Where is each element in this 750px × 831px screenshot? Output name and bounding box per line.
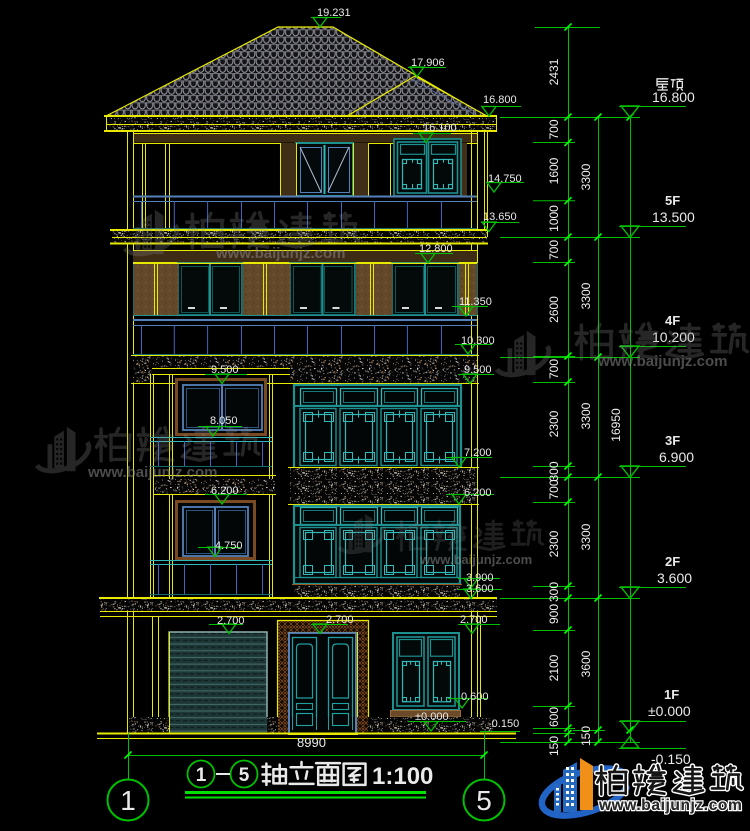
svg-text:600: 600 xyxy=(547,707,561,727)
svg-text:700: 700 xyxy=(547,359,561,379)
svg-text:2300: 2300 xyxy=(547,530,561,557)
svg-text:10.300: 10.300 xyxy=(461,335,495,347)
svg-text:2600: 2600 xyxy=(547,296,561,323)
svg-text:2F: 2F xyxy=(665,554,680,569)
svg-text:3.600: 3.600 xyxy=(657,570,692,586)
svg-text:5: 5 xyxy=(239,765,250,786)
svg-text:2.700: 2.700 xyxy=(460,614,488,626)
svg-text:3600: 3600 xyxy=(579,650,593,677)
svg-text:19.231: 19.231 xyxy=(317,7,351,19)
svg-text:3.600: 3.600 xyxy=(466,583,494,595)
svg-text:16.100: 16.100 xyxy=(423,122,457,134)
svg-text:300: 300 xyxy=(547,582,561,602)
svg-text:3300: 3300 xyxy=(579,523,593,550)
svg-text:1600: 1600 xyxy=(547,157,561,184)
svg-text:6.200: 6.200 xyxy=(464,487,492,499)
svg-text:2431: 2431 xyxy=(547,58,561,85)
svg-text:2100: 2100 xyxy=(547,654,561,681)
svg-text:300: 300 xyxy=(547,461,561,481)
svg-text:900: 900 xyxy=(547,604,561,624)
svg-text:1: 1 xyxy=(196,765,207,786)
svg-text:5F: 5F xyxy=(665,193,680,208)
svg-text:1: 1 xyxy=(120,785,136,816)
svg-text:9.500: 9.500 xyxy=(211,364,239,376)
svg-text:1000: 1000 xyxy=(547,205,561,232)
svg-text:3300: 3300 xyxy=(579,163,593,190)
svg-text:4.750: 4.750 xyxy=(215,540,243,552)
svg-text:-0.150: -0.150 xyxy=(488,718,519,730)
svg-text:14.750: 14.750 xyxy=(488,173,522,185)
svg-text:www.baijunjz.com: www.baijunjz.com xyxy=(419,552,532,567)
svg-text:13.500: 13.500 xyxy=(652,209,695,225)
svg-text:8990: 8990 xyxy=(297,735,326,750)
svg-text:6.900: 6.900 xyxy=(659,449,694,465)
svg-text:150: 150 xyxy=(579,726,593,746)
svg-text:0.600: 0.600 xyxy=(461,691,489,703)
svg-text:2.700: 2.700 xyxy=(326,614,354,626)
svg-text:700: 700 xyxy=(547,119,561,139)
svg-text:www.baijunjz.com: www.baijunjz.com xyxy=(597,353,727,370)
svg-text:4F: 4F xyxy=(665,313,680,328)
svg-text:17.906: 17.906 xyxy=(411,57,445,69)
svg-text:±0.000: ±0.000 xyxy=(415,711,449,723)
svg-text:3300: 3300 xyxy=(579,402,593,429)
svg-text:1F: 1F xyxy=(664,687,679,702)
svg-text:150: 150 xyxy=(547,736,561,756)
svg-text:www.baijunjz.com: www.baijunjz.com xyxy=(598,797,742,814)
svg-text:16.800: 16.800 xyxy=(652,89,695,105)
svg-text:1:100: 1:100 xyxy=(372,763,433,790)
svg-text:13.650: 13.650 xyxy=(483,211,517,223)
svg-text:700: 700 xyxy=(547,240,561,260)
svg-text:6.200: 6.200 xyxy=(211,485,239,497)
svg-text:3F: 3F xyxy=(665,433,680,448)
svg-text:12.800: 12.800 xyxy=(419,243,453,255)
svg-text:±0.000: ±0.000 xyxy=(648,703,691,719)
svg-text:16.800: 16.800 xyxy=(483,94,517,106)
svg-text:2300: 2300 xyxy=(547,410,561,437)
svg-text:7.200: 7.200 xyxy=(464,447,492,459)
svg-text:8.050: 8.050 xyxy=(210,415,238,427)
svg-text:www.baijunjz.com: www.baijunjz.com xyxy=(215,245,345,262)
svg-text:www.baijunjz.com: www.baijunjz.com xyxy=(87,464,217,481)
svg-text:3300: 3300 xyxy=(579,282,593,309)
svg-text:2.700: 2.700 xyxy=(217,615,245,627)
svg-text:16950: 16950 xyxy=(609,408,623,442)
svg-text:9.500: 9.500 xyxy=(464,364,492,376)
svg-text:11.350: 11.350 xyxy=(459,296,492,308)
svg-text:700: 700 xyxy=(547,479,561,499)
svg-text:5: 5 xyxy=(476,785,492,816)
